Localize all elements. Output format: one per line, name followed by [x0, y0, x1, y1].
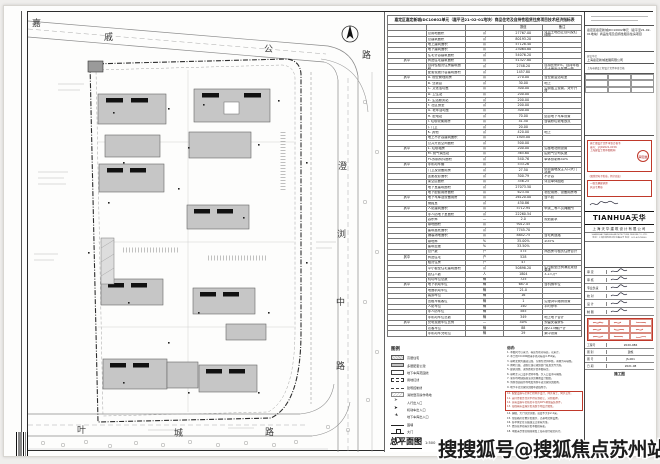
title-block: 嘉定区嘉定新城JDC10602单元（嘉平泾21-02-01地块）商品住宅及自持性… [584, 12, 654, 452]
drawing-frame: 嘉 戚 公 路 澄 浏 中 路 叶 城 路 [27, 11, 653, 451]
indicator-rows: 总用地面积 ㎡ 27767.00 详见土地出让合同及红线图 总建筑面积 ㎡ 80… [388, 31, 582, 337]
legend-label: 机动车出入口 [407, 407, 426, 412]
signature-row: 审 定 [585, 268, 654, 276]
legend: 图例 高层住宅 多层配套公建 [391, 346, 501, 443]
stamp-note: （图纸经电子签章，复印无效） [588, 174, 651, 178]
design-stage: 施工图 [585, 370, 654, 379]
signature-row: 校 对 [585, 292, 654, 300]
signature-table: 审 定 审 核 [585, 268, 654, 316]
notes-lines-a: 1. 本图尺寸以米计，标高为绝对标高，以米计。2. 本工程±0.000相当于绝对… [507, 351, 583, 390]
indicator-table-title: 嘉定区嘉定新城JDC10602单元（嘉平泾21-02-01地块）商品住宅及自持性… [388, 16, 582, 25]
legend-symbol-icon [391, 392, 404, 397]
architect-stamp: 一级注册建筑师 执业专用章 [587, 180, 652, 197]
road-label-bottom-3: 路 [265, 426, 274, 438]
road-label-bottom-2: 城 [174, 428, 183, 439]
signature-scribble [607, 276, 654, 283]
row-unit: 辆 [465, 331, 504, 336]
notes-red-highlight-box: 10. 配套设施与主体工程同步设计、同步施工、同步交付。11. 自持性租赁住房不… [505, 391, 583, 411]
tianhua-logo: TIANHUA天华 [585, 211, 654, 225]
project-name-box: 嘉定区嘉定新城JDC10602单元（嘉平泾21-02-01地块）商品住宅及自持性… [585, 26, 654, 52]
field-label: 工程号 [585, 343, 607, 347]
signature-scribble [607, 284, 654, 291]
signature-scribble [607, 308, 654, 315]
legend-symbol-icon [391, 355, 404, 360]
row-label: 非机动车充电位 [426, 331, 465, 336]
drawing-title: 总平面图 1:500 [390, 436, 435, 449]
legend-item: 高层住宅 [391, 354, 501, 361]
field-value: 2020-086 [607, 343, 654, 347]
note-line-red: 13. 海绵城市设施详见海绵专项设计图纸。 [507, 405, 581, 409]
registration-chop-grid [587, 318, 653, 341]
review-approval-stamp: 施工图设计文件审查合格书 编号：沪JD2021-0156 上海建设工程审图机构 … [587, 140, 652, 172]
field-label: 图 别 [585, 350, 607, 354]
company-name: 上海天华建筑设计有限公司 [585, 225, 654, 233]
legend-label: 高层住宅 [407, 355, 419, 360]
legend-item: 围墙 [391, 421, 501, 428]
site-plan: 嘉 戚 公 路 澄 浏 中 路 叶 城 路 [28, 12, 384, 452]
field-row: 图 号 JS-001 [585, 356, 654, 363]
legend-item: 多层配套公建 [391, 361, 501, 368]
signature-scribble [607, 292, 654, 299]
table-row: 非机动车充电位 辆 29 集中设置 [388, 331, 582, 336]
legend-title: 图例 [391, 346, 501, 352]
review-seal-icon: 审图章 [637, 150, 649, 162]
signature-role: 审 核 [585, 278, 607, 282]
title-block-spacer [585, 242, 654, 268]
client-box: 建设单位 上海嘉定新城发展有限公司 [585, 52, 654, 64]
signature-scribble [607, 268, 654, 275]
legend-symbol-icon [391, 407, 404, 412]
frame-outer-line [21, 11, 22, 451]
legend-symbol-icon [391, 388, 404, 389]
company-address-line: 地址：上海市普陀区云岭东路89号 电话：021-62578800 [585, 237, 654, 240]
north-compass-icon [342, 25, 358, 42]
signature-row: 审 核 [585, 276, 654, 284]
drawing-fields: 工程号 2020-086 图 别 建施 图 号 JS-001 [585, 342, 654, 370]
barcode [16, 432, 28, 456]
row-group [388, 331, 427, 336]
road-label-right-4: 路 [336, 360, 345, 372]
legend-item: 机动车出入口 [391, 406, 501, 413]
site-plan-linework: 嘉 戚 公 路 澄 浏 中 路 叶 城 路 [28, 12, 384, 452]
field-label: 日 期 [585, 364, 607, 368]
field-row: 工程号 2020-086 [585, 342, 654, 349]
road-label-top-2: 戚 [104, 31, 113, 43]
legend-label: 人行出入口 [407, 400, 422, 405]
field-row: 图 别 建施 [585, 349, 654, 356]
drawing-sheet-screenshot: 嘉 戚 公 路 澄 浏 中 路 叶 城 路 [0, 0, 660, 464]
legend-symbol-icon [391, 425, 404, 426]
notes-lines-b: 14. 围墙、大门详见详图，高度不大于2.2米。15. 垃圾箱房位置详见图示，沿… [507, 412, 583, 434]
legend-item: 消防登高操作场地 [391, 391, 501, 398]
road-label-top-4: 路 [362, 49, 371, 61]
field-row: 日 期 2021.08 [585, 363, 654, 370]
legend-item: 用地红线 [391, 376, 501, 383]
signature-role: 校 对 [585, 294, 607, 298]
legend-label: 大门 [407, 429, 413, 434]
row-remark: 集中设置 [543, 331, 582, 336]
road-label-right-1: 澄 [338, 160, 347, 172]
legend-item: 地下车库出入口 [391, 413, 501, 420]
stamp-line: 执业专用章 [590, 186, 649, 190]
field-label: 图 号 [585, 357, 607, 361]
legend-symbol-icon [391, 429, 404, 434]
drawing-scale: 1:500 [425, 441, 435, 445]
signature-row: 制 图 [585, 308, 654, 316]
legend-label: 地下车库出入口 [407, 414, 429, 419]
note-line: 9. 地下车库范围详见图中虚线所示。 [507, 386, 583, 390]
legend-label: 多层配套公建 [407, 363, 426, 368]
notes-title: 说明： [507, 345, 583, 350]
legend-symbol-icon [391, 400, 404, 405]
signature-row: 专业负责 [585, 284, 654, 292]
legend-item: 人行出入口 [391, 398, 501, 405]
notes: 说明： 1. 本图尺寸以米计，标高为绝对标高，以米计。2. 本工程±0.000相… [507, 345, 583, 434]
building-footprints [98, 89, 270, 392]
legend-symbol-icon [391, 370, 404, 375]
legend-items: 高层住宅 多层配套公建 地下车库范围线 [391, 354, 501, 443]
drawing-title-text: 总平面图 [390, 436, 422, 449]
signature-row: 设 计 [585, 300, 654, 308]
client-name: 上海嘉定新城发展有限公司 [587, 58, 652, 62]
signature-role: 专业负责 [585, 286, 607, 290]
row-value: 29 [504, 331, 543, 336]
watermark-text: 搜搜狐号@搜狐焦点苏州站 [438, 433, 660, 462]
legend-symbol-icon [391, 378, 404, 383]
indicator-table-zone: 嘉定区嘉定新城JDC10602单元（嘉平泾21-02-01地块）商品住宅及自持性… [384, 12, 584, 452]
paper-sheet: 嘉 戚 公 路 澄 浏 中 路 叶 城 路 [3, 5, 657, 457]
legend-item: 地下车库范围线 [391, 369, 501, 376]
signature-role: 审 定 [585, 270, 607, 274]
road-label-right-2: 浏 [337, 228, 346, 240]
legend-label: 地下车库范围线 [407, 370, 429, 375]
road-label-right-3: 中 [336, 296, 345, 308]
countersign-grid [585, 74, 654, 136]
legend-symbol-icon [391, 363, 404, 368]
legend-symbol-icon [391, 415, 404, 420]
legend-label: 围墙 [407, 422, 413, 427]
road-label-top-3: 公 [264, 44, 273, 55]
indicator-table: 嘉定区嘉定新城JDC10602单元（嘉平泾21-02-01地块）商品住宅及自持性… [387, 15, 582, 337]
field-value: JS-001 [607, 357, 654, 361]
legend-label: 消防登高操作场地 [407, 392, 432, 397]
road-label-bottom-1: 叶 [77, 425, 86, 436]
legend-item: 建筑控制线 [391, 384, 501, 391]
legend-label: 建筑控制线 [407, 385, 422, 390]
title-block-top-cell [585, 12, 654, 26]
approval-line: 上海市建设工程设计文件审查合格 [585, 64, 654, 74]
company-address: SHANGHAI TIANHUA ARCHITECTURE DESIGN CO.… [585, 233, 654, 242]
legend-label: 用地红线 [407, 377, 419, 382]
road-label-top-1: 嘉 [32, 17, 41, 29]
tianhua-logo-text: TIANHUA天华 [585, 213, 654, 223]
handwritten-signature [589, 200, 619, 207]
signature-role: 设 计 [585, 302, 607, 306]
field-value: 2021.08 [607, 364, 654, 368]
signature-role: 制 图 [585, 310, 607, 314]
field-value: 建施 [607, 350, 654, 354]
signature-scribble [607, 300, 654, 307]
